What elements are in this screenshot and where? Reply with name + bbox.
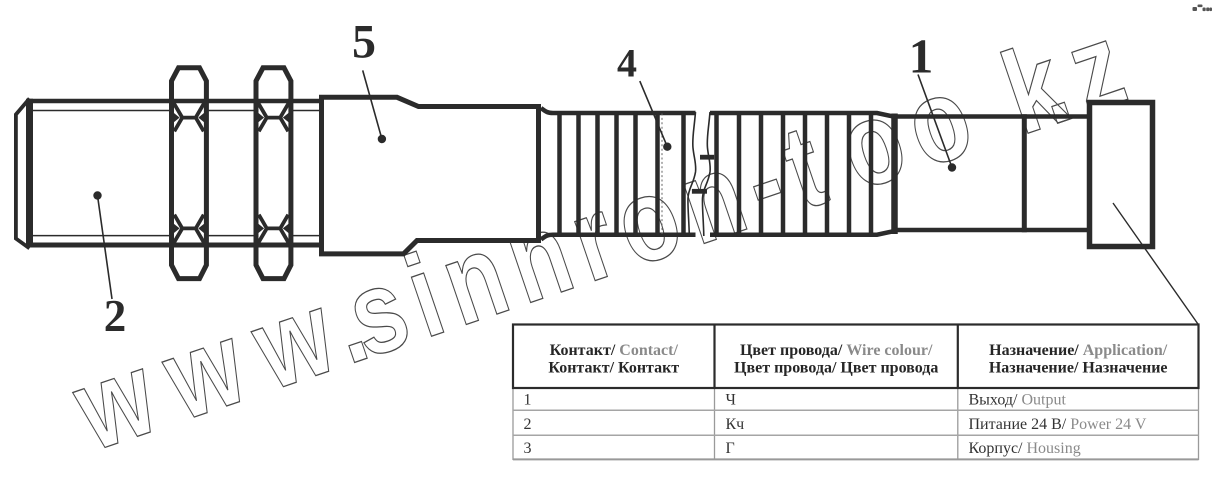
svg-text:Назначение/ Application/: Назначение/ Application/ bbox=[989, 342, 1168, 359]
svg-text:Цвет провода/ Wire colour/: Цвет провода/ Wire colour/ bbox=[740, 342, 933, 359]
svg-text:Кч: Кч bbox=[726, 416, 745, 433]
svg-text:1: 1 bbox=[909, 29, 934, 84]
svg-text:2: 2 bbox=[104, 291, 127, 341]
svg-text:3: 3 bbox=[524, 440, 532, 457]
svg-text:5: 5 bbox=[352, 16, 376, 69]
svg-text:Ч: Ч bbox=[726, 392, 736, 409]
svg-text:1: 1 bbox=[524, 392, 532, 409]
svg-text:Цвет провода/ Цвет провода: Цвет провода/ Цвет провода bbox=[734, 360, 938, 377]
svg-text:Контакт/ Contact/: Контакт/ Contact/ bbox=[550, 342, 679, 359]
svg-text:2: 2 bbox=[524, 416, 532, 433]
svg-text:Выход/ Output: Выход/ Output bbox=[969, 392, 1067, 409]
svg-text:Контакт/ Контакт: Контакт/ Контакт bbox=[548, 360, 679, 377]
svg-text:Г: Г bbox=[726, 440, 735, 457]
svg-text:4: 4 bbox=[617, 41, 637, 86]
svg-text:Корпус/ Housing: Корпус/ Housing bbox=[969, 440, 1081, 457]
svg-text:Питание 24 В/ Power 24 V: Питание 24 В/ Power 24 V bbox=[969, 416, 1147, 433]
svg-text:Назначение/ Назначение: Назначение/ Назначение bbox=[989, 360, 1168, 377]
